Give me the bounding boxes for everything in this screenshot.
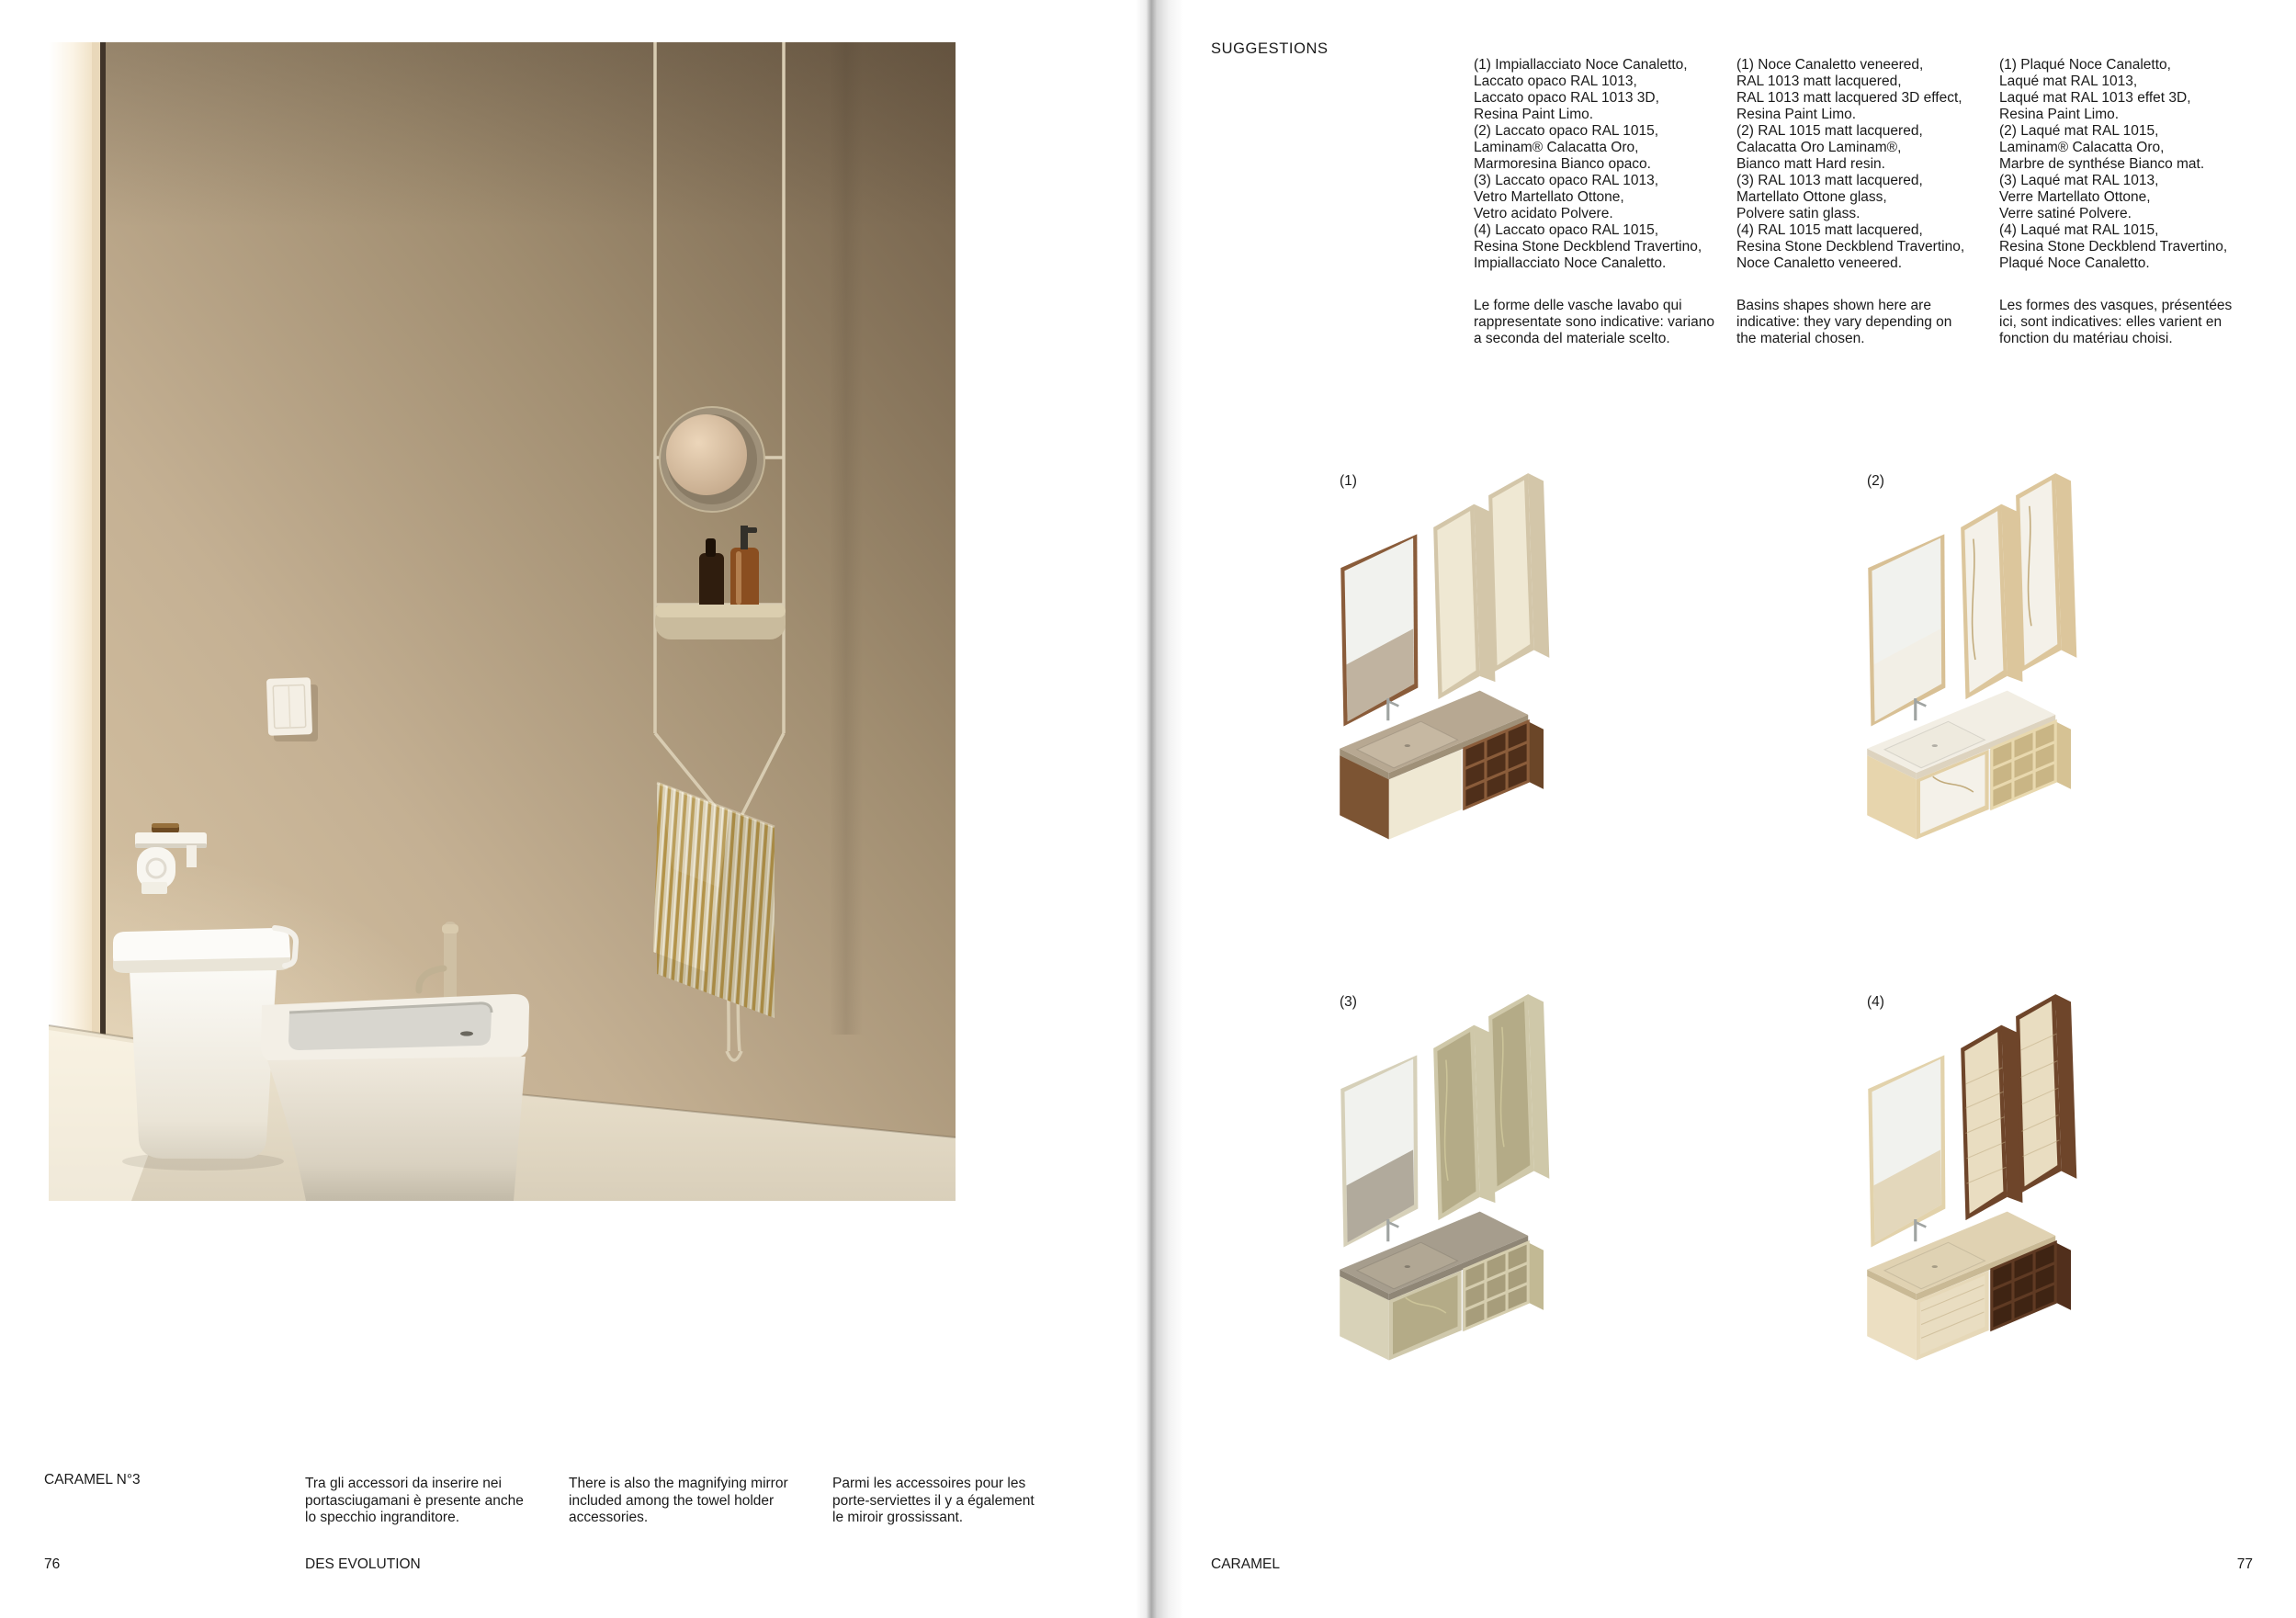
toilet-paper-holder: [135, 823, 207, 894]
basin-note: Le forme delle vasche lavabo qui rappres…: [1474, 298, 1722, 347]
finishes-column-italian: (1) Impiallacciato Noce Canaletto, Lacca…: [1474, 40, 1722, 364]
book-spine-shadow: [1136, 0, 1183, 1618]
bidet: [261, 922, 529, 1201]
collection-name: CARAMEL: [1211, 1556, 1280, 1573]
light-switch: [266, 677, 318, 741]
basin-note: Les formes des vasques, présentées ici, …: [1999, 298, 2247, 347]
finishes-list: (1) Impiallacciato Noce Canaletto, Lacca…: [1474, 57, 1722, 272]
render-illustration: [1865, 471, 2087, 848]
render-illustration: [1865, 992, 2087, 1369]
dropper-bottle: [699, 553, 724, 612]
project-label: CARAMEL N°3: [44, 1472, 141, 1488]
photo-elements: [49, 42, 956, 1201]
amber-pump-bottle: [730, 548, 759, 612]
caption-french: Parmi les accessoires pour les porte-ser…: [832, 1476, 1071, 1527]
catalog-spread: CARAMEL N°3 Tra gli accessori da inserir…: [0, 0, 2296, 1618]
finishes-list: (1) Noce Canaletto veneered, RAL 1013 ma…: [1736, 57, 1985, 272]
caption-english: There is also the magnifying mirror incl…: [569, 1476, 808, 1527]
basin-note: Basins shapes shown here are indicative:…: [1736, 298, 1985, 347]
caption-italian: Tra gli accessori da inserire nei portas…: [305, 1476, 544, 1527]
rail-shelf: [655, 526, 786, 639]
finishes-column-english: (1) Noce Canaletto veneered, RAL 1013 ma…: [1736, 40, 1985, 364]
magnifying-mirror: [660, 407, 764, 512]
page-number-left: 76: [44, 1556, 60, 1573]
suggestions-header: SUGGESTIONS: [1211, 40, 1329, 58]
collection-title: DES EVOLUTION: [305, 1556, 421, 1573]
bathroom-photo: [49, 42, 956, 1201]
render-illustration: [1338, 471, 1560, 848]
vanity-render-2: (2): [1858, 462, 2115, 857]
vanity-render-3: (3): [1330, 983, 1588, 1378]
finishes-column-french: (1) Plaqué Noce Canaletto, Laqué mat RAL…: [1999, 40, 2247, 364]
finishes-list: (1) Plaqué Noce Canaletto, Laqué mat RAL…: [1999, 57, 2247, 272]
vanity-render-4: (4): [1858, 983, 2115, 1378]
render-illustration: [1338, 992, 1560, 1369]
striped-towel: [653, 783, 775, 1018]
page-number-right: 77: [2237, 1556, 2253, 1573]
vanity-render-1: (1): [1330, 462, 1588, 857]
